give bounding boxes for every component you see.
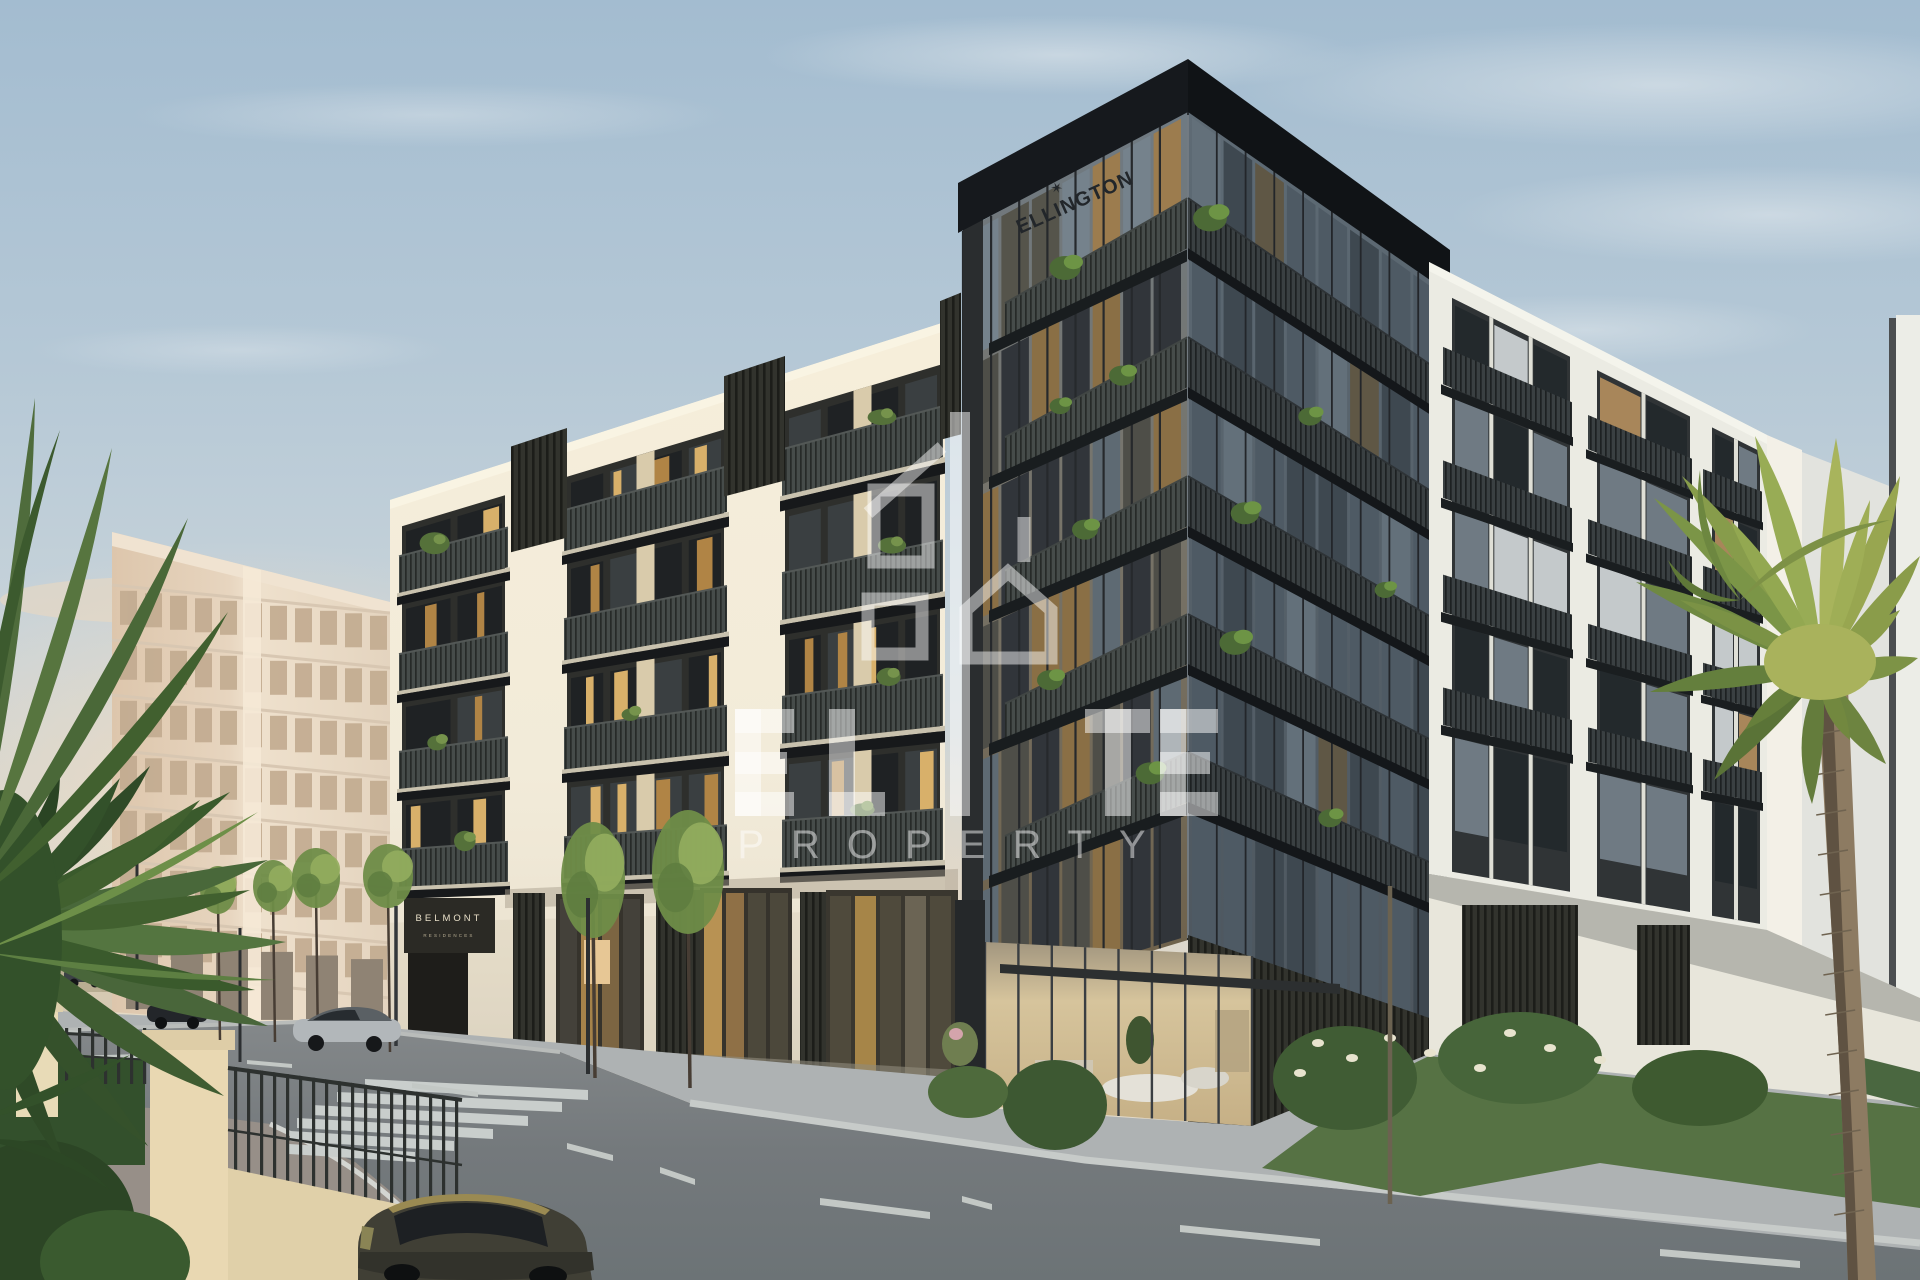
svg-text:PROPERTY: PROPERTY <box>737 823 1172 867</box>
svg-text:BELMONT: BELMONT <box>416 913 483 924</box>
svg-text:RESIDENCES: RESIDENCES <box>423 933 474 938</box>
